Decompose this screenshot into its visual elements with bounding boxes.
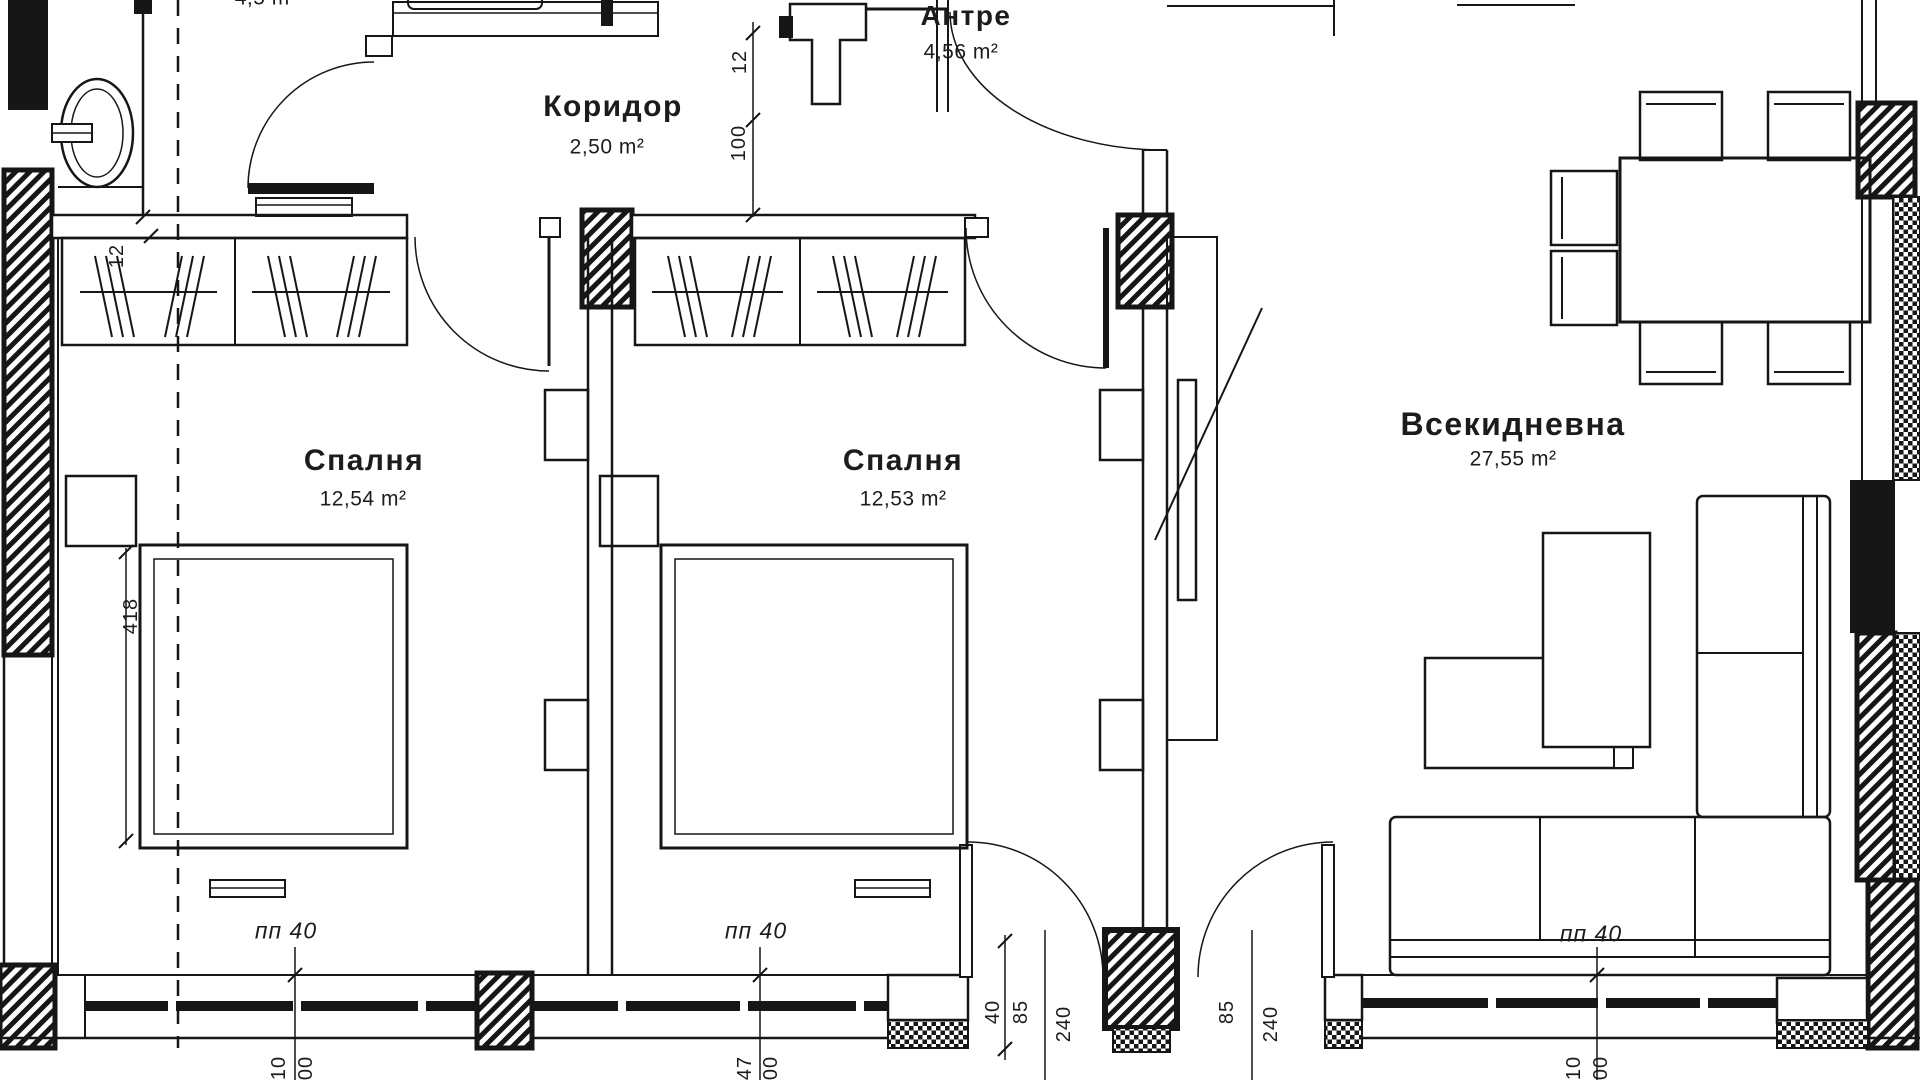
- tv-panel: [1178, 380, 1196, 600]
- bathroom-door-arc: [248, 62, 374, 188]
- chair: [1768, 322, 1850, 384]
- column-bottom-left: [0, 965, 55, 1048]
- column-bottom-right: [1868, 880, 1917, 1048]
- dresser: [545, 390, 588, 460]
- column-bottom-mid: [477, 973, 532, 1048]
- column-left: [4, 170, 52, 655]
- chair: [1551, 251, 1617, 325]
- dim-wall-12: 12: [107, 244, 127, 268]
- room-area-cut-top: 4,5 m²: [235, 0, 298, 9]
- balcony-door-right-leaf: [1322, 845, 1334, 977]
- dim-cut-2: 00: [296, 1056, 316, 1080]
- dim-cut-4: 00: [761, 1056, 781, 1080]
- wall-stub-topleft: [8, 0, 48, 110]
- room-name-bedroom1: Спалня: [304, 446, 424, 476]
- dim-parapet-85-left: 85: [1011, 1000, 1031, 1024]
- dim-parapet-85-right: 85: [1217, 1000, 1237, 1024]
- column-between-bedrooms: [582, 210, 632, 307]
- tv-diagonal: [1155, 308, 1262, 540]
- entry-door-arc: [950, 12, 1163, 150]
- wardrobe-bedroom2: [635, 238, 965, 345]
- room-area-living: 27,55 m²: [1470, 449, 1557, 470]
- dim-cut-6: 00: [1591, 1056, 1611, 1080]
- window-bedroom2: [532, 1001, 888, 1011]
- dim-cut-5: 10: [1564, 1056, 1584, 1080]
- room-name-living: Всекидневна: [1400, 408, 1625, 440]
- nightstand-bedroom2: [600, 476, 658, 546]
- chair: [1768, 92, 1850, 160]
- dim-cut-3: 47: [735, 1056, 755, 1080]
- balcony-door-left-leaf: [960, 845, 972, 977]
- bed-bedroom2: [661, 545, 967, 848]
- chair: [1640, 322, 1722, 384]
- balcony-door-left-arc: [968, 842, 1103, 977]
- dresser: [1100, 390, 1143, 460]
- parapet-label-2: пп 40: [725, 920, 787, 943]
- doors: [248, 12, 1334, 977]
- dim-room-418: 418: [121, 598, 141, 634]
- chair: [1551, 171, 1617, 245]
- dimension-lines: [119, 0, 1604, 1080]
- dim-door-40: 40: [983, 1000, 1003, 1024]
- dim-cut-1: 10: [269, 1056, 289, 1080]
- bathroom-door-leaf: [248, 183, 374, 194]
- dim-corridor-12: 12: [730, 50, 750, 74]
- dim-corridor-100: 100: [729, 125, 749, 161]
- dining-table: [1620, 158, 1870, 322]
- column-balcony: [1105, 930, 1177, 1028]
- bedroom2-door-arc: [966, 228, 1106, 368]
- dim-opening-240-right: 240: [1261, 1006, 1281, 1042]
- balcony-door-right-arc: [1198, 842, 1333, 977]
- corridor-bench: [256, 198, 352, 216]
- parapet-label-3: пп 40: [1560, 923, 1622, 946]
- room-name-bedroom2: Спалня: [843, 446, 963, 476]
- room-area-antre: 4,56 m²: [924, 42, 999, 63]
- dresser: [545, 700, 588, 770]
- entry-door-frame: [790, 4, 866, 104]
- dim-opening-240-left: 240: [1054, 1006, 1074, 1042]
- room-name-antre: Антре: [920, 2, 1011, 30]
- coffee-table: [1425, 533, 1650, 768]
- bed-bedroom1: [140, 545, 407, 848]
- room-area-corridor: 2,50 m²: [570, 137, 645, 158]
- bedroom1-door-arc: [415, 237, 549, 371]
- corridor-cabinet: [393, 2, 658, 36]
- column-hall: [1118, 215, 1172, 307]
- floor-plan: Коридор 2,50 m² Антре 4,56 m² Спалня 12,…: [0, 0, 1920, 1080]
- window-living: [1362, 998, 1777, 1008]
- tv-unit: [1155, 237, 1262, 740]
- wall-checker-right: [1893, 197, 1920, 480]
- column-right: [1857, 633, 1895, 880]
- chair: [1640, 92, 1722, 160]
- dining-set: [1551, 92, 1870, 384]
- column-top-right: [1858, 103, 1915, 197]
- room-area-bedroom1: 12,54 m²: [320, 489, 407, 510]
- dresser: [1100, 700, 1143, 770]
- nightstand-bedroom1: [66, 476, 136, 546]
- room-name-corridor: Коридор: [543, 92, 683, 122]
- parapet-label-1: пп 40: [255, 920, 317, 943]
- room-area-bedroom2: 12,53 m²: [860, 489, 947, 510]
